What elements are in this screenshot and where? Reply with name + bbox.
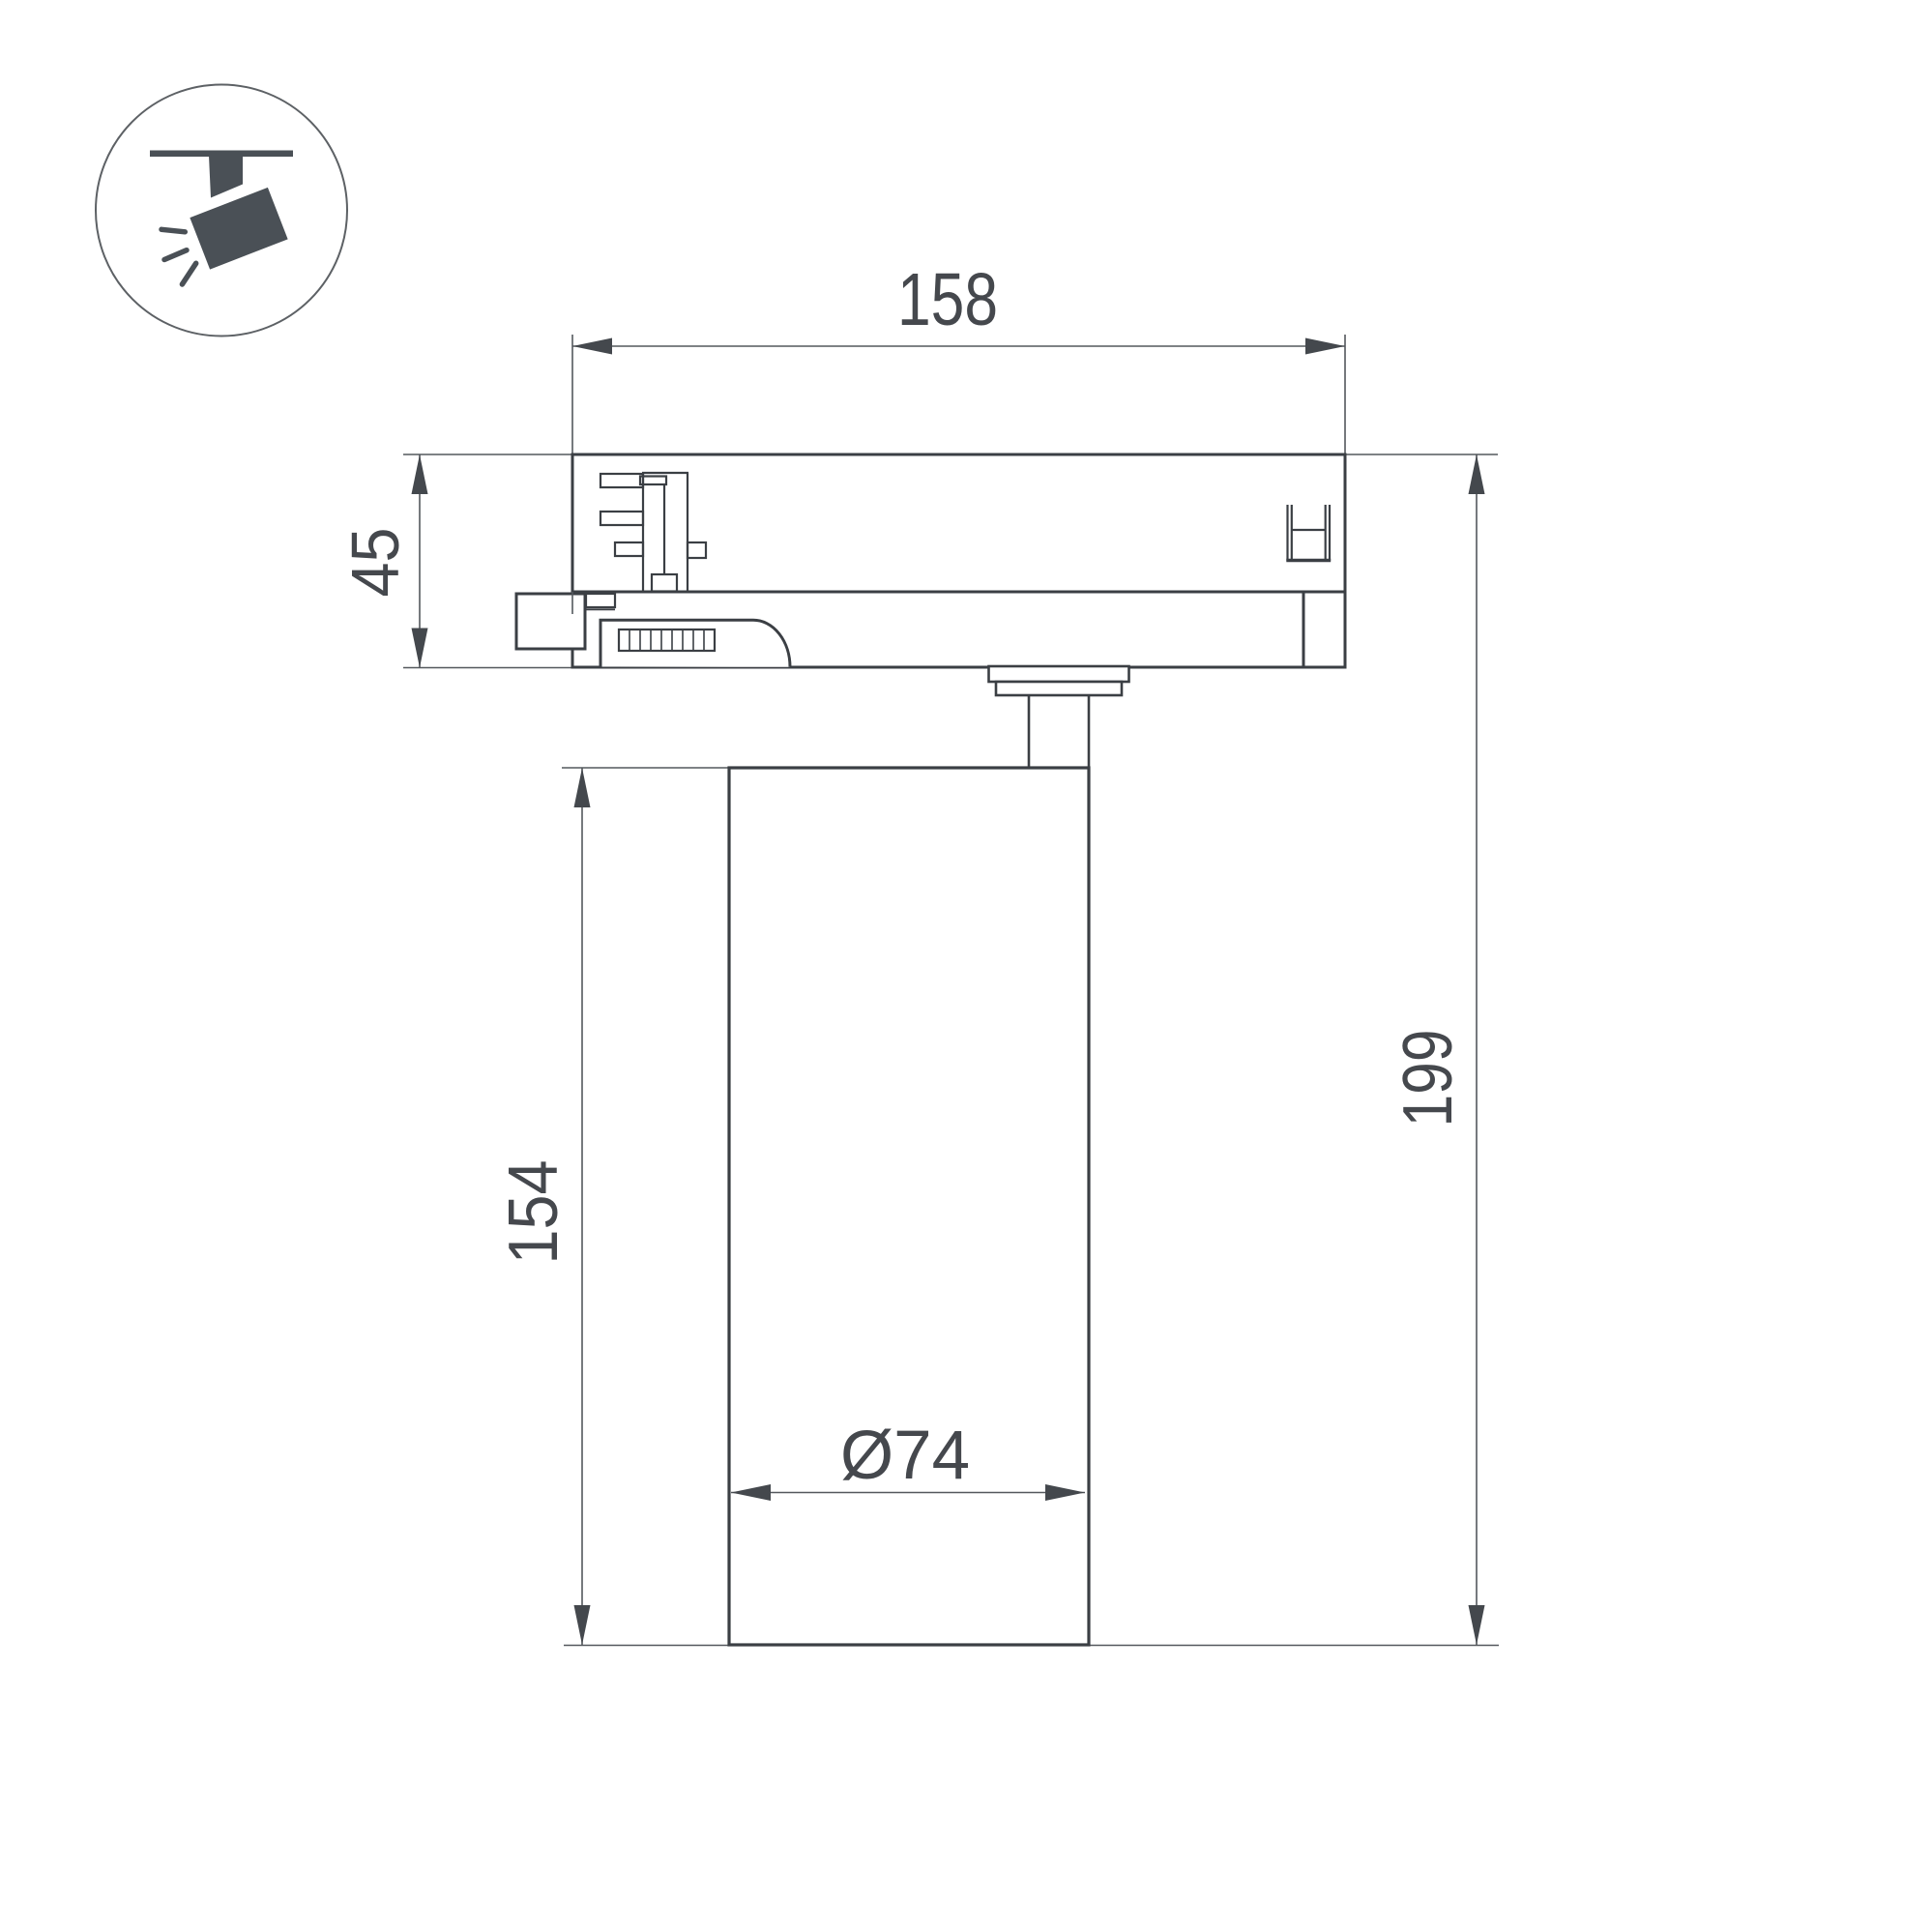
svg-text:Ø74: Ø74 (840, 1418, 970, 1494)
svg-text:154: 154 (495, 1160, 572, 1265)
svg-text:45: 45 (337, 528, 413, 598)
svg-text:158: 158 (897, 258, 998, 341)
svg-text:199: 199 (1390, 1030, 1467, 1127)
